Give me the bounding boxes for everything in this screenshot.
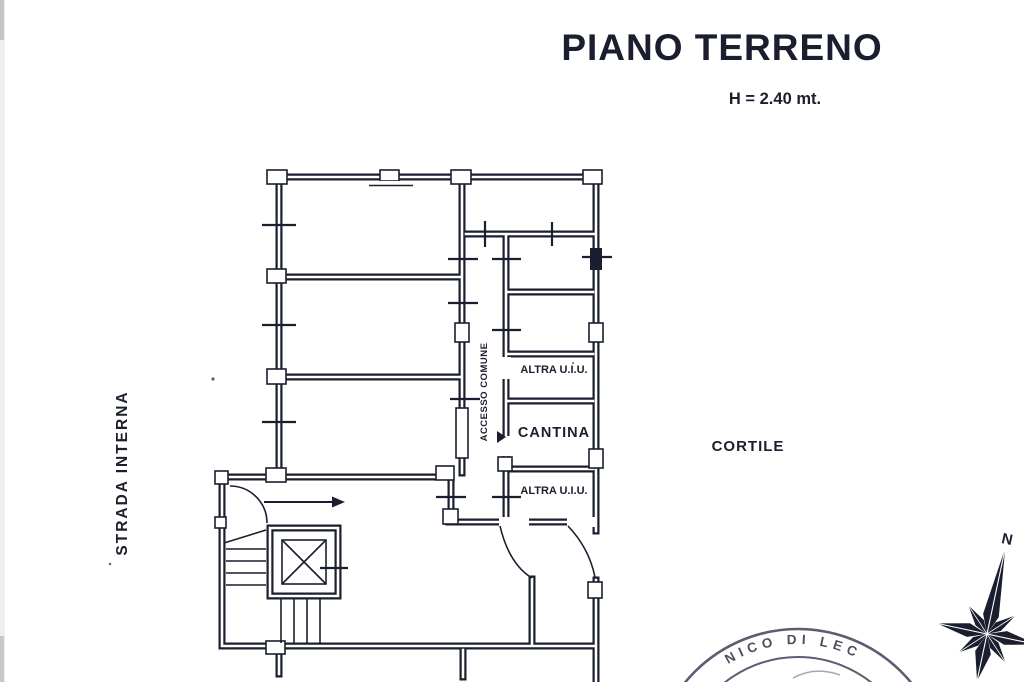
stairs-and-details: [224, 486, 595, 643]
stair-steps-upper: [226, 549, 266, 585]
wall-ticks: [262, 221, 612, 568]
stair-steps-lower: [281, 598, 320, 643]
room-label-altra-1: ALTRA U.I.U.: [520, 364, 587, 376]
floor-plan-page: PIANO TERRENO H = 2.40 mt. STRADA INTERN…: [0, 0, 1024, 682]
entrance-door-arc: [230, 486, 267, 523]
common-access-label: ACCESSO COMUNE: [479, 343, 490, 442]
page-title: PIANO TERRENO: [561, 27, 882, 68]
door-openings: [499, 357, 595, 527]
stamp-inner-mark: [793, 671, 840, 678]
stamp: NICO DI LEC: [652, 629, 944, 682]
door-arc-left: [500, 526, 532, 578]
elevator-cross: [282, 540, 326, 584]
room-label-altra-2: ALTRA U.I.U.: [520, 485, 587, 497]
stair-arrow-head: [332, 497, 345, 508]
street-label: STRADA INTERNA: [114, 390, 131, 555]
compass-north-label: N: [1000, 530, 1014, 549]
floor-plan-drawing: PIANO TERRENO H = 2.40 mt. STRADA INTERN…: [0, 0, 1024, 682]
scan-edge-artifacts: [0, 0, 5, 682]
height-note: H = 2.40 mt.: [729, 90, 821, 108]
door-arc-right: [568, 526, 595, 577]
courtyard-label: CORTILE: [712, 438, 785, 455]
stair-break-line: [224, 530, 266, 543]
compass-rose: N: [927, 521, 1024, 682]
room-label-cantina: CANTINA: [518, 425, 590, 441]
